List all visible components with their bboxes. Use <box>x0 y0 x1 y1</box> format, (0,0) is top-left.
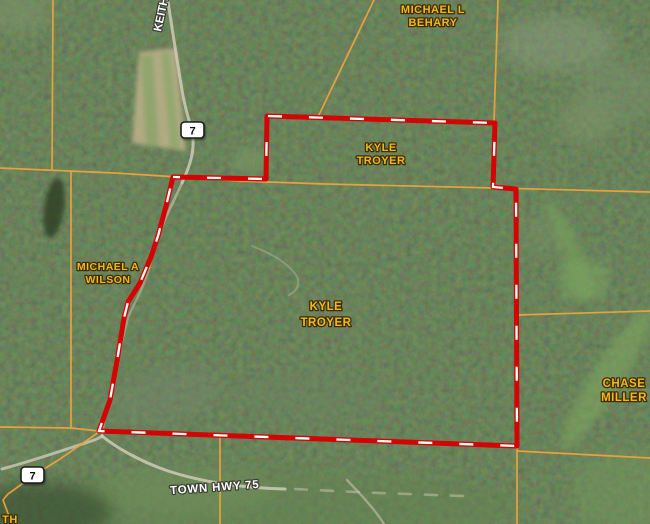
svg-text:TROYER: TROYER <box>357 155 406 167</box>
owner-label-behary: MICHAEL L BEHARY <box>401 4 465 29</box>
svg-text:WILSON: WILSON <box>86 274 131 286</box>
svg-text:TH: TH <box>2 514 18 524</box>
owner-label-wilson: MICHAEL A WILSON <box>77 261 139 286</box>
svg-text:KYLE: KYLE <box>365 142 396 154</box>
highway-shield-north: 7 <box>181 122 204 138</box>
svg-text:MILLER: MILLER <box>601 392 647 404</box>
svg-text:TROYER: TROYER <box>301 317 352 329</box>
svg-text:KYLE: KYLE <box>310 301 343 313</box>
svg-text:MICHAEL A: MICHAEL A <box>77 261 139 273</box>
svg-text:MICHAEL L: MICHAEL L <box>401 4 465 16</box>
highway-shield-south: 7 <box>21 467 44 483</box>
shield-number: 7 <box>189 126 195 138</box>
svg-text:CHASE: CHASE <box>603 378 646 390</box>
boundary-line <box>52 0 53 170</box>
svg-text:BEHARY: BEHARY <box>408 17 457 29</box>
shield-number: 7 <box>29 471 35 483</box>
satellite-map[interactable]: 7 7 KEITH TOWN HWY 75 MICHAEL L BEHARY K… <box>0 0 650 524</box>
map-viewport[interactable]: 7 7 KEITH TOWN HWY 75 MICHAEL L BEHARY K… <box>0 0 650 524</box>
owner-label-partial-southwest: TH <box>2 514 18 524</box>
